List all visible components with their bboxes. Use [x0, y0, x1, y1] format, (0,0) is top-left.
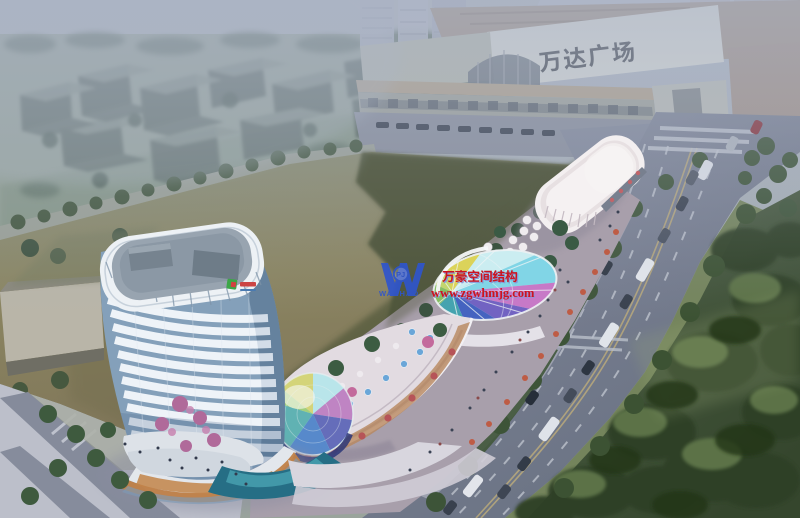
svg-text:PJ: PJ [396, 270, 405, 279]
svg-text:www.zgwhmjg.com: www.zgwhmjg.com [431, 286, 535, 300]
svg-text:WANHAO: WANHAO [379, 289, 419, 298]
